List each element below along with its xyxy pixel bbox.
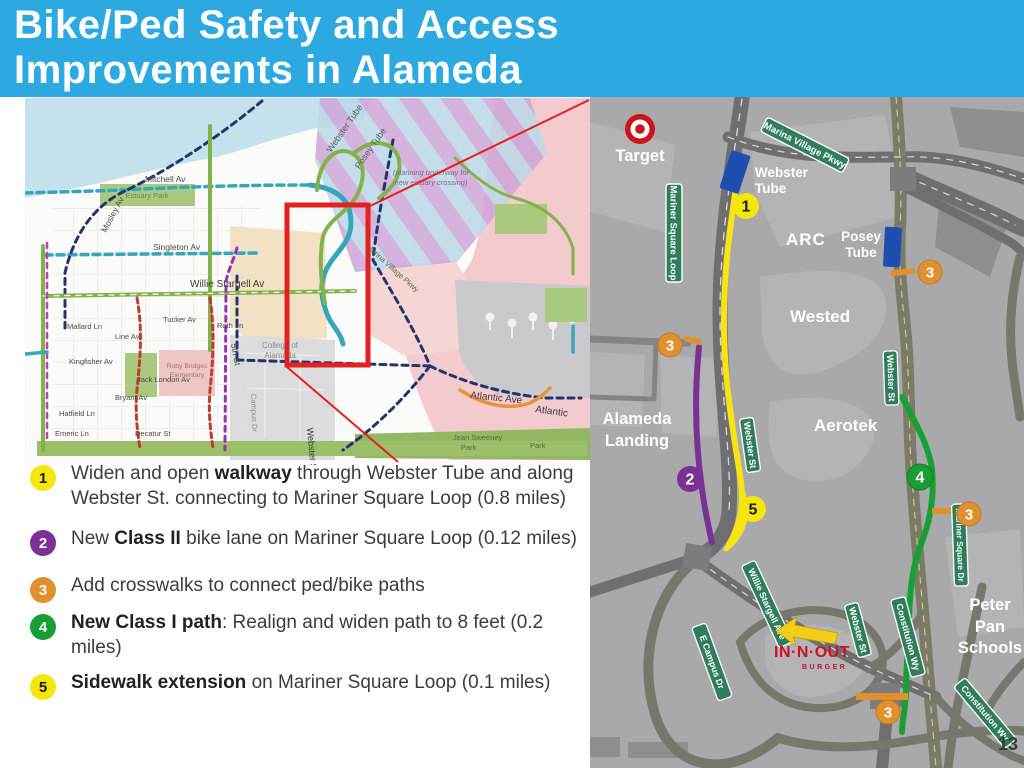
item-3-post: Add crosswalks to connect ped/bike paths	[71, 575, 425, 596]
svg-text:2: 2	[686, 472, 695, 489]
street-label: Willie Stargell Av	[190, 279, 264, 290]
item-5-text: Sidewalk extension on Mariner Square Loo…	[71, 670, 550, 695]
posey-tube-label: Tube	[845, 245, 877, 260]
poi-label: College of	[262, 341, 299, 350]
planning-note: new estuary crossing)	[395, 178, 468, 187]
item-1-pre: Widen and open	[71, 463, 215, 484]
park-label: Estuary Park	[126, 191, 169, 200]
target-label: Target	[615, 147, 665, 165]
svg-text:3: 3	[666, 338, 674, 355]
street-label: Hatfield Ln	[59, 409, 95, 418]
slide-title-line2: Improvements in Alameda	[0, 48, 1024, 93]
item-2-pre: New	[71, 528, 114, 549]
alameda-landing-label: Alameda	[603, 410, 673, 428]
overview-map: Mitchell Av Mosley Av Singleton Av Willi…	[25, 98, 590, 465]
item-1-bold: walkway	[215, 463, 292, 484]
item-2-badge: 2	[30, 530, 56, 556]
innout-sub-label: BURGER	[802, 664, 847, 671]
item-2-bold: Class II	[114, 528, 181, 549]
webster-tube-label: Webster	[755, 165, 809, 180]
improvement-item-3: 3 Add crosswalks to connect ped/bike pat…	[30, 573, 578, 603]
street-label: Campus Dr	[249, 394, 259, 433]
item-1-badge: 1	[30, 465, 56, 491]
park-label: Jean Sweeney	[453, 433, 502, 442]
park-area-2	[545, 288, 587, 322]
item-5-bold: Sidewalk extension	[71, 672, 246, 693]
item-3-text: Add crosswalks to connect ped/bike paths	[71, 573, 425, 598]
webster-tube-label: Tube	[755, 181, 787, 196]
posey-tube-portal	[883, 227, 902, 268]
planning-note: (planning underway for	[393, 168, 470, 177]
svg-text:5: 5	[749, 502, 758, 519]
arc-label: ARC	[786, 230, 826, 249]
svg-text:Mariner Square Loop: Mariner Square Loop	[668, 185, 679, 280]
alameda-landing-label: Landing	[605, 432, 669, 450]
improvement-item-4: 4 New Class I path: Realign and widen pa…	[30, 610, 578, 660]
peter-pan-label: Schools	[958, 639, 1022, 657]
street-label: Singleton Av	[153, 242, 201, 252]
map-badge-2: 2	[677, 466, 703, 492]
improvements-list: 1 Widen and open walkway through Webster…	[30, 461, 578, 700]
svg-text:3: 3	[926, 265, 934, 282]
slide-title-line1: Bike/Ped Safety and Access	[0, 0, 1024, 48]
map-badge-5: 5	[740, 496, 766, 522]
svg-text:Webster St: Webster St	[885, 354, 897, 401]
page-number: 13	[998, 734, 1018, 754]
svg-text:4: 4	[916, 470, 925, 487]
item-1-text: Widen and open walkway through Webster T…	[71, 461, 578, 511]
street-label: Mitchell Av	[145, 174, 186, 184]
street-label: Line Av	[115, 332, 140, 341]
street-label: Decatur St	[135, 429, 171, 438]
park-label: Park	[530, 441, 546, 450]
svg-text:3: 3	[884, 705, 892, 722]
street-label: Bryant Av	[115, 393, 147, 402]
street-label: Roth Ln	[217, 321, 243, 330]
street-label: Kingfisher Av	[69, 357, 113, 366]
map-badge-3: 3	[918, 260, 942, 284]
school-label: Ruby Bridges	[167, 363, 208, 370]
slide: Bike/Ped Safety and Access Improvements …	[0, 0, 1024, 768]
item-4-text: New Class I path: Realign and widen path…	[71, 610, 578, 660]
street-label: Tucker Av	[163, 315, 196, 324]
detail-map: Marina Village Pkwy Mariner Square Loop …	[590, 97, 1024, 768]
peter-pan-label: Pan	[975, 618, 1005, 636]
map-badge-3: 3	[658, 333, 682, 357]
peter-pan-label: Peter	[969, 596, 1011, 614]
improvement-item-5: 5 Sidewalk extension on Mariner Square L…	[30, 670, 578, 700]
svg-text:1: 1	[742, 199, 751, 216]
svg-text:3: 3	[965, 507, 973, 524]
street-label: Mallard Ln	[67, 322, 102, 331]
sign-webster-st: Webster St	[883, 351, 899, 405]
improvement-item-1: 1 Widen and open walkway through Webster…	[30, 461, 578, 511]
item-4-bold: New Class I path	[71, 612, 222, 633]
posey-tube-label: Posey	[841, 229, 881, 244]
map-badge-4: 4	[907, 464, 933, 490]
item-3-badge: 3	[30, 577, 56, 603]
crosswalk-bar	[932, 508, 951, 514]
aerotek-label: Aerotek	[814, 416, 878, 435]
school-label: Elementary	[170, 372, 205, 379]
park-label: Park	[461, 443, 477, 452]
header-banner: Bike/Ped Safety and Access Improvements …	[0, 0, 1024, 97]
street-label: Emeric Ln	[55, 429, 89, 438]
item-5-badge: 5	[30, 674, 56, 700]
improvement-item-2: 2 New Class II bike lane on Mariner Squa…	[30, 526, 578, 556]
item-2-text: New Class II bike lane on Mariner Square…	[71, 526, 577, 551]
map-badge-3: 3	[876, 700, 900, 724]
item-2-post: bike lane on Mariner Square Loop (0.12 m…	[181, 528, 577, 549]
map-badge-1: 1	[733, 193, 759, 219]
innout-label: IN·N·OUT	[774, 644, 850, 661]
sign-mariner-square-loop: Mariner Square Loop	[666, 184, 682, 282]
wested-label: Wested	[790, 307, 850, 326]
item-5-post: on Mariner Square Loop (0.1 miles)	[246, 672, 550, 693]
item-4-badge: 4	[30, 614, 56, 640]
crosswalk-bar	[856, 693, 908, 700]
poi-label: Alameda	[264, 351, 296, 360]
map-badge-3: 3	[957, 502, 981, 526]
